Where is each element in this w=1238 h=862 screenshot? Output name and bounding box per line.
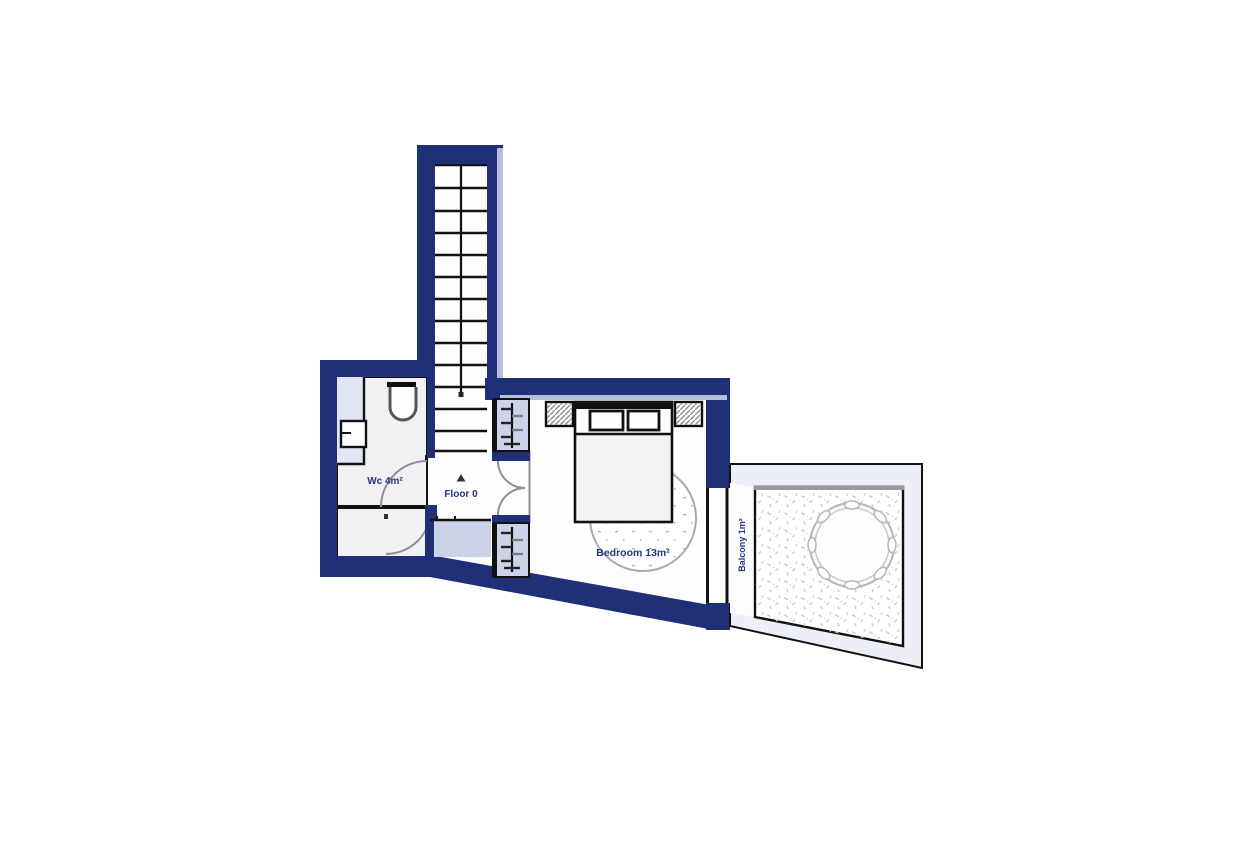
wall-band (492, 515, 530, 523)
nightstand-hatch (677, 404, 701, 425)
toilet-bowl (390, 387, 416, 420)
wall-stair-left-lower (427, 377, 435, 458)
floorplan-canvas: Wc 4m² Floor 0 Bedroom 13m² Balcony 1m² (0, 0, 1238, 862)
wall-wc-bottom (320, 556, 437, 577)
wall-pier-bottom (706, 603, 730, 630)
balcony (730, 464, 922, 668)
pillow-icon (628, 411, 659, 430)
room-label-bedroom: Bedroom 13m² (596, 547, 670, 559)
room-label-balcony: Balcony 1m² (737, 518, 747, 572)
wall-stair-right (487, 145, 498, 400)
wall-pier-top (706, 400, 730, 488)
pillow-icon (590, 411, 623, 430)
table-scallop (888, 538, 896, 553)
walk-line-end-dot (459, 392, 464, 397)
table-scallop (808, 538, 816, 553)
toilet-icon (387, 382, 416, 420)
wall-wc-left (320, 360, 337, 577)
toilet-tank (387, 382, 416, 387)
radiator-icon (492, 523, 529, 577)
wall-light-edge (497, 148, 503, 378)
sink-icon (341, 421, 366, 447)
radiator-back (492, 523, 497, 577)
landing-step (434, 521, 491, 557)
radiator-icon (492, 399, 529, 451)
bed-icon (575, 402, 672, 522)
floorplan-drawing: Wc 4m² Floor 0 Bedroom 13m² Balcony 1m² (0, 0, 1238, 862)
table-scallop (845, 501, 860, 509)
floor-label: Floor 0 (444, 489, 478, 500)
room-label-wc: Wc 4m² (367, 476, 403, 487)
round-table-icon (808, 501, 896, 589)
window-frame-line (726, 488, 729, 603)
radiator-back (492, 399, 497, 451)
table-scallop (845, 581, 860, 589)
bed-headboard (575, 402, 672, 409)
nightstand-hatch (548, 404, 572, 425)
wc-divider-wall (337, 505, 429, 509)
window-frame-line (706, 488, 709, 603)
wall-band (492, 451, 530, 461)
wall-stair-left (417, 145, 435, 377)
door-hinge-dot (384, 514, 388, 519)
wall-light-edge (500, 395, 727, 400)
window-icon (706, 488, 730, 603)
